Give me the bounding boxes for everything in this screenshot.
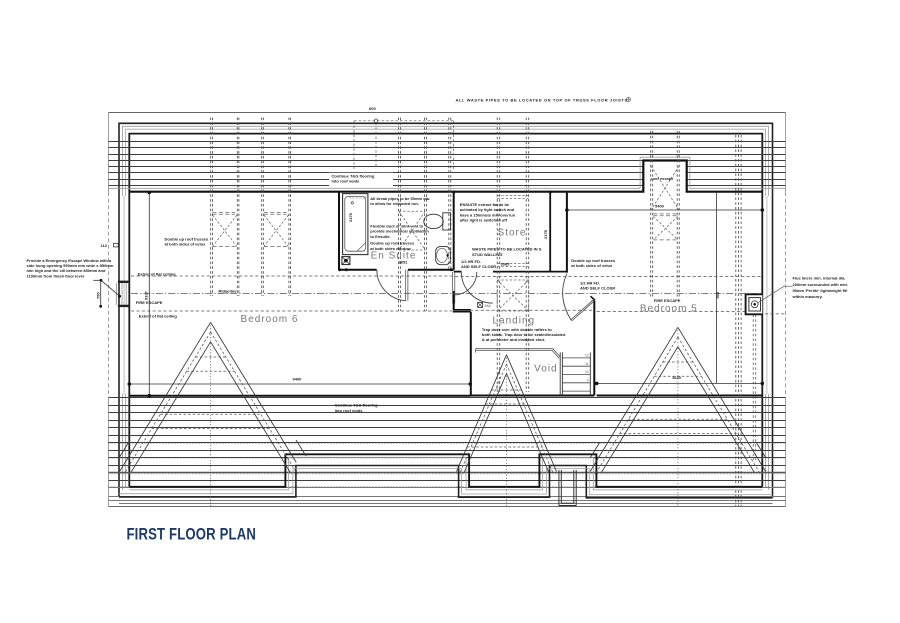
svg-text:112: 112 <box>101 243 108 248</box>
svg-text:3651: 3651 <box>399 260 409 265</box>
svg-text:FIRE ESCAPE: FIRE ESCAPE <box>136 300 163 305</box>
svg-text:11: 11 <box>585 362 589 366</box>
svg-text:roof escape: roof escape <box>651 176 674 181</box>
svg-text:750: 750 <box>96 292 101 299</box>
svg-text:1100mm from finish floor level: 1100mm from finish floor level <box>27 273 85 278</box>
svg-text:Extent of flat ceiling: Extent of flat ceiling <box>139 314 178 319</box>
svg-text:ALL WASTE PIPES TO BE LOC: ALL WASTE PIPES TO BE LOCATED ON TOP OF … <box>456 98 628 103</box>
svg-text:Ridgeline: Ridgeline <box>219 288 238 293</box>
svg-text:Continue T&G flooring: Continue T&G flooring <box>335 402 378 407</box>
svg-text:AND SELF CLOSR: AND SELF CLOSR <box>580 286 615 291</box>
svg-text:Store: Store <box>498 228 527 239</box>
svg-text:FIRST FLOOR PLAN: FIRST FLOOR PLAN <box>127 525 257 544</box>
svg-text:12: 12 <box>585 354 589 358</box>
svg-text:STUD WALLING: STUD WALLING <box>472 252 502 257</box>
svg-text:2175: 2175 <box>348 212 353 222</box>
svg-text:9400: 9400 <box>293 377 303 382</box>
svg-text:200mm surrounded with min.: 200mm surrounded with min. <box>793 282 849 287</box>
svg-text:to allow for extended run.: to allow for extended run. <box>370 201 419 206</box>
svg-text:9: 9 <box>587 379 589 383</box>
svg-text:Landing: Landing <box>493 315 536 326</box>
svg-text:after light is switched off: after light is switched off <box>460 218 508 223</box>
svg-text:Void: Void <box>534 363 557 374</box>
svg-text:FIRE ESCAPE: FIRE ESCAPE <box>654 298 681 303</box>
svg-text:10: 10 <box>585 370 589 374</box>
svg-text:at both sides of velux: at both sides of velux <box>165 242 207 247</box>
svg-text:at both sides window: at both sides window <box>370 246 411 251</box>
svg-text:within masonry.: within masonry. <box>792 294 823 299</box>
svg-text:into roof voids: into roof voids <box>335 408 364 413</box>
svg-text:Extent of flat ceiling: Extent of flat ceiling <box>138 271 177 276</box>
svg-text:SAA: SAA <box>484 304 491 308</box>
svg-text:En Suite: En Suite <box>371 251 417 262</box>
svg-text:AND SELF CLOSR: AND SELF CLOSR <box>461 264 496 269</box>
svg-text:at both sides of velux: at both sides of velux <box>571 263 613 268</box>
svg-text:600: 600 <box>369 106 376 111</box>
svg-text:902: 902 <box>715 291 720 298</box>
svg-text:50mm 'Perlite' lightweight fil: 50mm 'Perlite' lightweight fill <box>793 288 848 293</box>
svg-text:3065: 3065 <box>501 262 511 267</box>
svg-text:Bedroom 6: Bedroom 6 <box>241 314 299 325</box>
svg-text:Flue liners min. internal dia.: Flue liners min. internal dia. <box>793 276 846 281</box>
svg-text:5107: 5107 <box>144 290 149 300</box>
svg-text:2175: 2175 <box>543 229 548 239</box>
svg-text:Bedroom 5: Bedroom 5 <box>640 303 698 314</box>
svg-text:& at perimeter and clamped shu: & at perimeter and clamped shut. <box>482 337 545 342</box>
svg-text:1620: 1620 <box>672 375 682 380</box>
svg-text:5400: 5400 <box>655 203 665 208</box>
svg-text:to Ensuite.: to Ensuite. <box>370 234 390 239</box>
svg-text:into roof voids: into roof voids <box>332 179 361 184</box>
